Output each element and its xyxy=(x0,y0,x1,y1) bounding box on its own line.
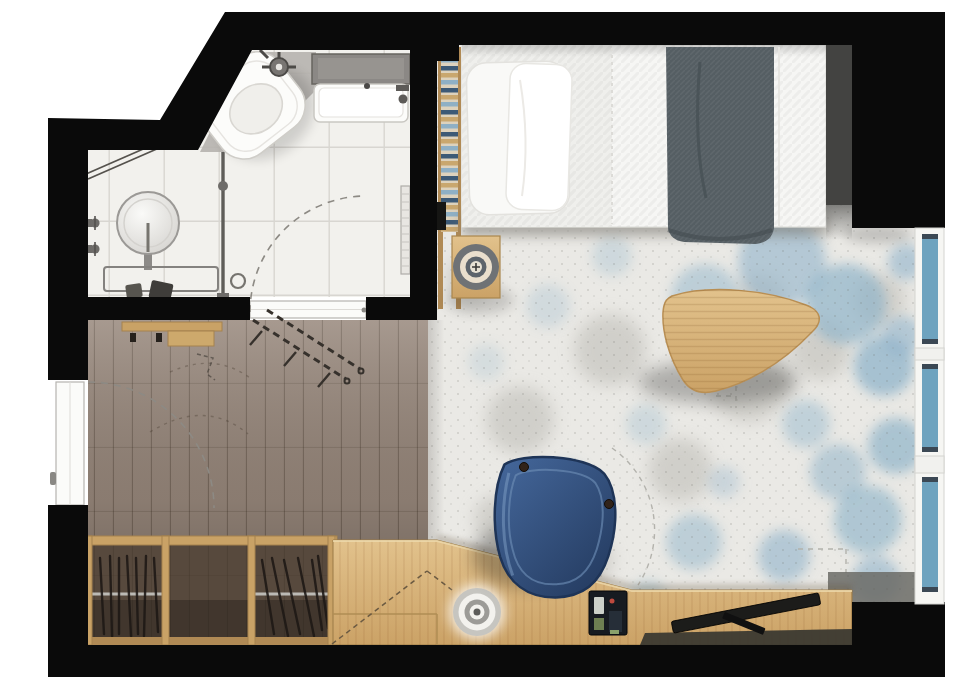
towel-radiator xyxy=(401,186,410,274)
wall-bottom xyxy=(48,645,852,677)
wall-bathroom-divider xyxy=(410,12,437,320)
window-mullion xyxy=(915,348,944,360)
window-pane-1 xyxy=(922,234,938,344)
bedside-tray xyxy=(453,244,499,290)
throw-blanket xyxy=(666,47,774,244)
wall-bathroom-bottom-left xyxy=(84,297,250,320)
bed-side-gap-shadow xyxy=(826,45,852,205)
window-wall xyxy=(915,228,944,604)
floor-plan-canvas xyxy=(0,0,970,700)
window-pane-3 xyxy=(922,477,938,592)
phone-dock xyxy=(589,591,627,635)
wall-left-lower xyxy=(48,505,88,677)
wall-bottom-right-block xyxy=(852,602,945,677)
wardrobe-frame-bottom xyxy=(85,637,337,645)
window-mullion xyxy=(915,456,944,473)
window-pane-2 xyxy=(922,364,938,452)
wardrobe-frame-top xyxy=(85,536,337,545)
wall-top-right-block xyxy=(852,12,945,228)
open-wardrobe xyxy=(85,536,337,645)
wall-bathroom-bottom-right xyxy=(366,297,437,320)
chair-knob xyxy=(605,500,614,509)
ladder-bracket xyxy=(437,44,459,61)
pillows xyxy=(466,61,573,216)
chair-knob xyxy=(520,463,529,472)
bathtub xyxy=(312,54,410,122)
desk-tray xyxy=(453,588,501,636)
floor-plan xyxy=(0,0,970,700)
door-handle xyxy=(50,472,56,485)
bed xyxy=(462,45,852,244)
